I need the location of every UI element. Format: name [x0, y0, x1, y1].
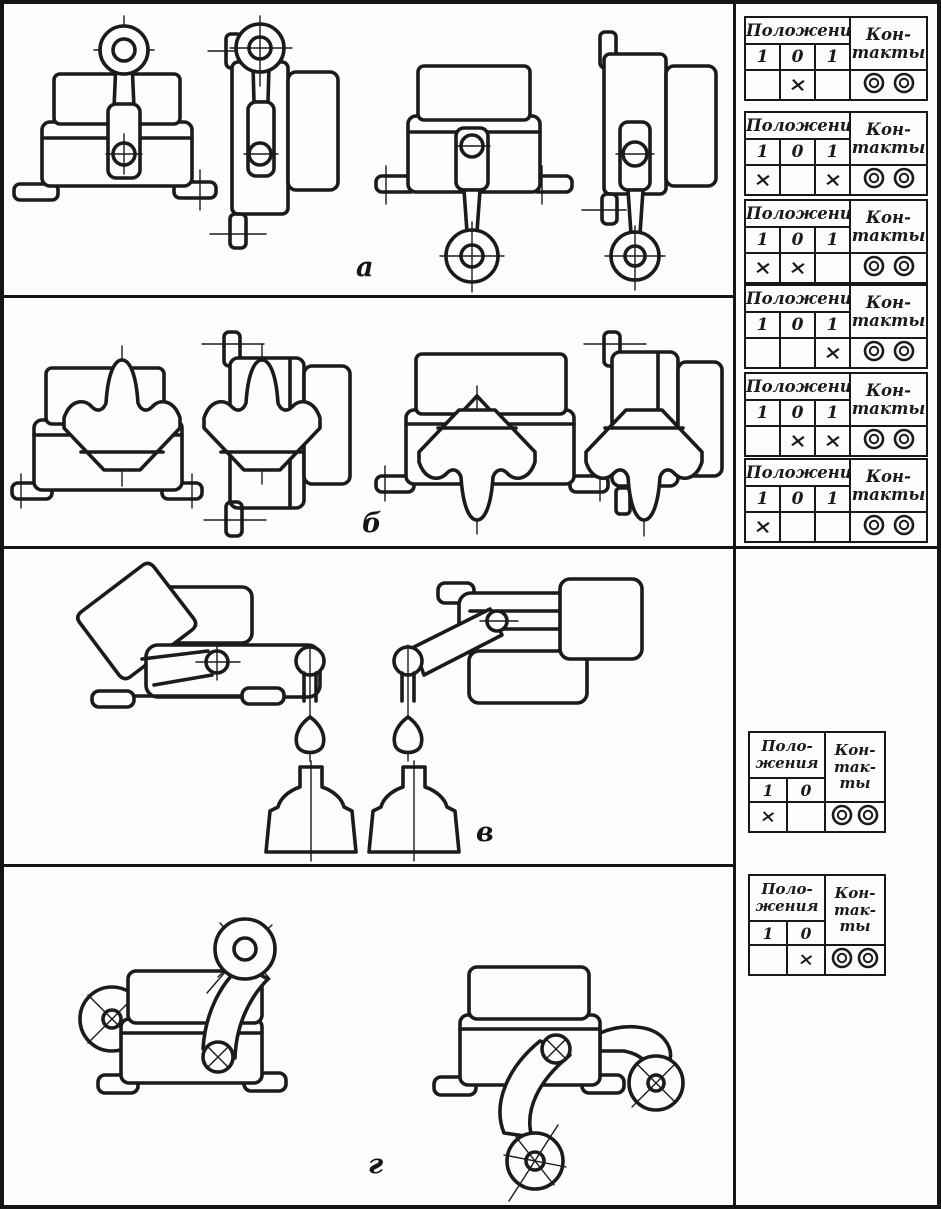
section-g: г — [4, 867, 733, 1205]
position-1-right: 1 — [815, 486, 850, 512]
state-mark — [780, 165, 815, 195]
section-v-label: в — [476, 817, 495, 848]
state-mark — [745, 426, 780, 456]
contact-circle-icon — [857, 513, 921, 537]
positions-header: Положения — [745, 200, 850, 227]
contacts-header: Кон- такты — [850, 459, 927, 512]
contact-circle-icon — [827, 803, 883, 827]
position-1-left: 1 — [745, 400, 780, 426]
contact-circle-icon — [857, 166, 921, 190]
state-mark: × — [745, 253, 780, 283]
state-mark — [745, 338, 780, 368]
position-1-right: 1 — [815, 400, 850, 426]
state-mark: × — [745, 165, 780, 195]
positions-header: Положения — [745, 459, 850, 486]
state-mark — [815, 512, 850, 542]
contact-circle-icon — [857, 427, 921, 451]
contact-circle-icon — [857, 339, 921, 363]
position-1-left: 1 — [745, 139, 780, 165]
position-1-right: 1 — [815, 227, 850, 253]
position-1: 1 — [749, 921, 787, 945]
contact-state-table-2: Положения Кон- такты 1 0 1 × × — [744, 111, 928, 196]
section-v: в — [4, 549, 733, 867]
state-mark: × — [787, 945, 825, 975]
position-1-right: 1 — [815, 139, 850, 165]
contacts-header: Кон- такты — [850, 200, 927, 253]
position-1-right: 1 — [815, 44, 850, 70]
position-0: 0 — [787, 921, 825, 945]
contact-symbols — [825, 945, 885, 975]
state-mark: × — [749, 802, 787, 832]
contacts-header: Кон- так- ты — [825, 875, 885, 945]
contact-circle-icon — [857, 71, 921, 95]
positions-header: Положения — [745, 17, 850, 44]
position-0: 0 — [780, 227, 815, 253]
section-a: а — [4, 4, 733, 298]
contacts-header: Кон- такты — [850, 285, 927, 338]
contact-state-table-3: Положения Кон- такты 1 0 1 × × — [744, 199, 928, 284]
state-mark — [780, 338, 815, 368]
contact-state-table-8: Поло- жения Кон- так- ты 1 0 × — [748, 874, 886, 976]
tables-column: Положения Кон- такты 1 0 1 × — [733, 4, 937, 1205]
state-mark: × — [780, 253, 815, 283]
contact-state-table-5: Положения Кон- такты 1 0 1 × × — [744, 372, 928, 457]
contact-state-table-7: Поло- жения Кон- так- ты 1 0 × — [748, 731, 886, 833]
positions-header: Поло- жения — [749, 875, 825, 921]
state-mark: × — [780, 70, 815, 100]
position-0: 0 — [780, 44, 815, 70]
contact-symbols — [850, 512, 927, 542]
position-0: 0 — [780, 312, 815, 338]
positions-header: Положения — [745, 373, 850, 400]
positions-header: Поло- жения — [749, 732, 825, 778]
section-b: б — [4, 298, 733, 549]
rope-pull-switch-drawing — [4, 549, 733, 864]
section-b-label: б — [362, 508, 383, 539]
state-mark — [749, 945, 787, 975]
contact-circle-icon — [827, 946, 883, 970]
state-mark: × — [815, 426, 850, 456]
state-mark: × — [815, 165, 850, 195]
position-1-right: 1 — [815, 312, 850, 338]
position-0: 0 — [780, 139, 815, 165]
contact-circle-icon — [857, 254, 921, 278]
contacts-header: Кон- такты — [850, 112, 927, 165]
section-g-label: г — [368, 1149, 384, 1180]
contact-state-table-1: Положения Кон- такты 1 0 1 × — [744, 16, 928, 101]
state-mark: × — [745, 512, 780, 542]
positions-header: Положения — [745, 112, 850, 139]
state-mark — [815, 70, 850, 100]
contacts-header: Кон- такты — [850, 17, 927, 70]
scanned-figure-page: а — [0, 0, 941, 1209]
state-mark: × — [780, 426, 815, 456]
state-mark: × — [815, 338, 850, 368]
position-1-left: 1 — [745, 227, 780, 253]
position-1: 1 — [749, 778, 787, 802]
contact-state-table-6: Положения Кон- такты 1 0 1 × — [744, 458, 928, 543]
state-mark — [780, 512, 815, 542]
contact-symbols — [825, 802, 885, 832]
contact-symbols — [850, 70, 927, 100]
contacts-header: Кон- такты — [850, 373, 927, 426]
position-1-left: 1 — [745, 486, 780, 512]
state-mark — [787, 802, 825, 832]
contacts-header: Кон- так- ты — [825, 732, 885, 802]
position-0: 0 — [780, 486, 815, 512]
contact-symbols — [850, 253, 927, 283]
state-mark — [745, 70, 780, 100]
state-mark — [815, 253, 850, 283]
drawings-panel: а — [4, 4, 733, 1205]
contact-symbols — [850, 165, 927, 195]
position-0: 0 — [780, 400, 815, 426]
contact-symbols — [850, 426, 927, 456]
section-a-label: а — [356, 252, 375, 283]
contact-symbols — [850, 338, 927, 368]
position-1-left: 1 — [745, 312, 780, 338]
position-0: 0 — [787, 778, 825, 802]
positions-header: Положения — [745, 285, 850, 312]
contact-state-table-4: Положения Кон- такты 1 0 1 × — [744, 284, 928, 369]
position-1-left: 1 — [745, 44, 780, 70]
